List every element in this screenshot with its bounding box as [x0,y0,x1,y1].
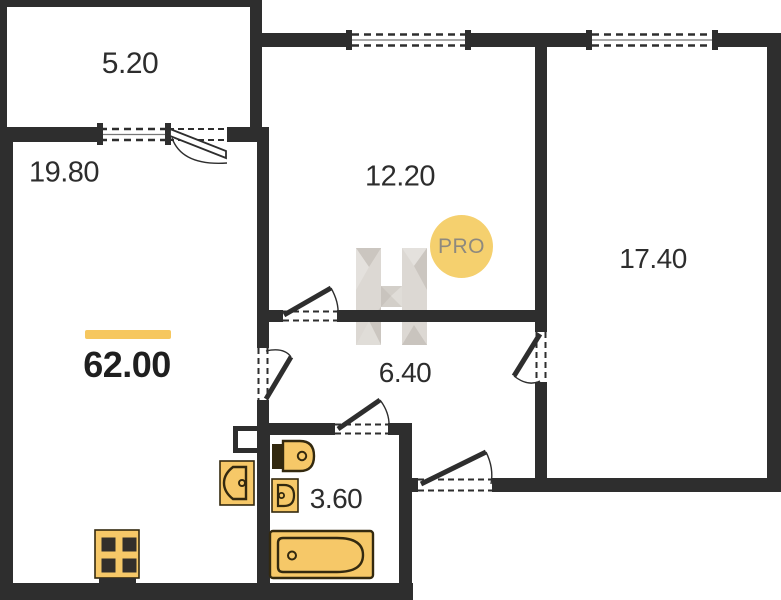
pro-badge: PRO [430,215,493,278]
window [346,30,471,50]
stove-icon [95,530,139,584]
room-area-label-living-kitchen: 19.80 [29,159,99,188]
total-area-label: 62.00 [83,344,171,386]
door-swing [259,348,292,400]
duct-shaft [236,429,260,451]
door-swing [335,400,389,434]
window [97,123,171,145]
plan-overlay [0,0,781,600]
floor-plan: 5.20 19.80 12.20 17.40 6.40 3.60 62.00 P… [0,0,781,600]
pro-badge-label: PRO [438,235,485,259]
door-swing [283,288,338,321]
kitchen-sink-icon [220,461,254,505]
total-area-accent-bar [85,330,171,339]
room-area-label-hallway: 6.40 [379,359,432,387]
room-area-label-balcony: 5.20 [102,49,158,79]
bathtub-icon [270,531,373,578]
toilet-icon [272,441,314,471]
door-swing [514,332,546,383]
window [586,30,718,50]
door-swing [168,129,227,163]
door-swing [418,452,492,491]
room-area-label-room-top: 12.20 [365,163,435,192]
room-area-label-bathroom: 3.60 [310,485,363,513]
room-area-label-room-right: 17.40 [619,245,687,273]
washbasin-icon [272,479,298,512]
